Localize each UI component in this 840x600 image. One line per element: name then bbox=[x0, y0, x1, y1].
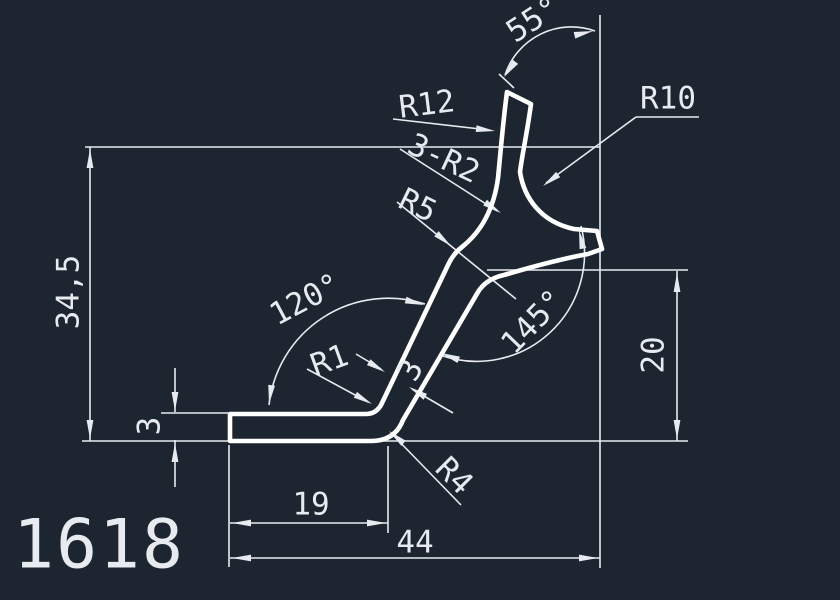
label-r10: R10 bbox=[640, 81, 696, 117]
arrowhead bbox=[172, 443, 179, 462]
arrowhead bbox=[172, 392, 179, 411]
arrowhead bbox=[232, 555, 251, 562]
arrowhead bbox=[674, 273, 681, 292]
label-r4: R4 bbox=[428, 450, 480, 502]
label-total-height: 34,5 bbox=[51, 255, 87, 330]
drawing-number: 1618 bbox=[13, 506, 185, 585]
arrowhead bbox=[541, 172, 560, 189]
label-r5: R5 bbox=[393, 181, 442, 230]
arrowhead bbox=[576, 229, 587, 249]
arrowhead bbox=[232, 520, 251, 527]
arrowhead bbox=[367, 359, 387, 375]
arrowhead bbox=[674, 420, 681, 439]
arrowhead bbox=[87, 149, 94, 168]
label-leg-thickness: 3 bbox=[132, 417, 168, 436]
arrowhead bbox=[367, 520, 386, 527]
arrowhead bbox=[354, 392, 374, 407]
cad-drawing-canvas: 55° R12 R10 3-R2 R5 34,5 120° 145° R1 3 … bbox=[0, 0, 840, 600]
label-tip-angle: 55° bbox=[500, 0, 567, 50]
arrowhead bbox=[266, 385, 275, 405]
label-r1: R1 bbox=[306, 337, 353, 384]
label-r2-fillets: 3-R2 bbox=[402, 127, 485, 191]
label-total-width: 44 bbox=[396, 525, 433, 561]
cad-viewport[interactable]: 55° R12 R10 3-R2 R5 34,5 120° 145° R1 3 … bbox=[0, 0, 840, 600]
arrowhead bbox=[476, 125, 496, 134]
dimension-labels: 55° R12 R10 3-R2 R5 34,5 120° 145° R1 3 … bbox=[13, 0, 696, 585]
label-r12: R12 bbox=[397, 83, 457, 126]
arrowhead bbox=[87, 420, 94, 439]
leader-r10 bbox=[546, 117, 636, 183]
label-leg-length: 19 bbox=[292, 487, 329, 523]
tip-angle-tick bbox=[499, 74, 514, 88]
arrowhead bbox=[579, 555, 598, 562]
label-bend-angle: 120° bbox=[264, 266, 347, 333]
label-right-height: 20 bbox=[636, 336, 672, 373]
dimension-lines bbox=[82, 15, 699, 568]
